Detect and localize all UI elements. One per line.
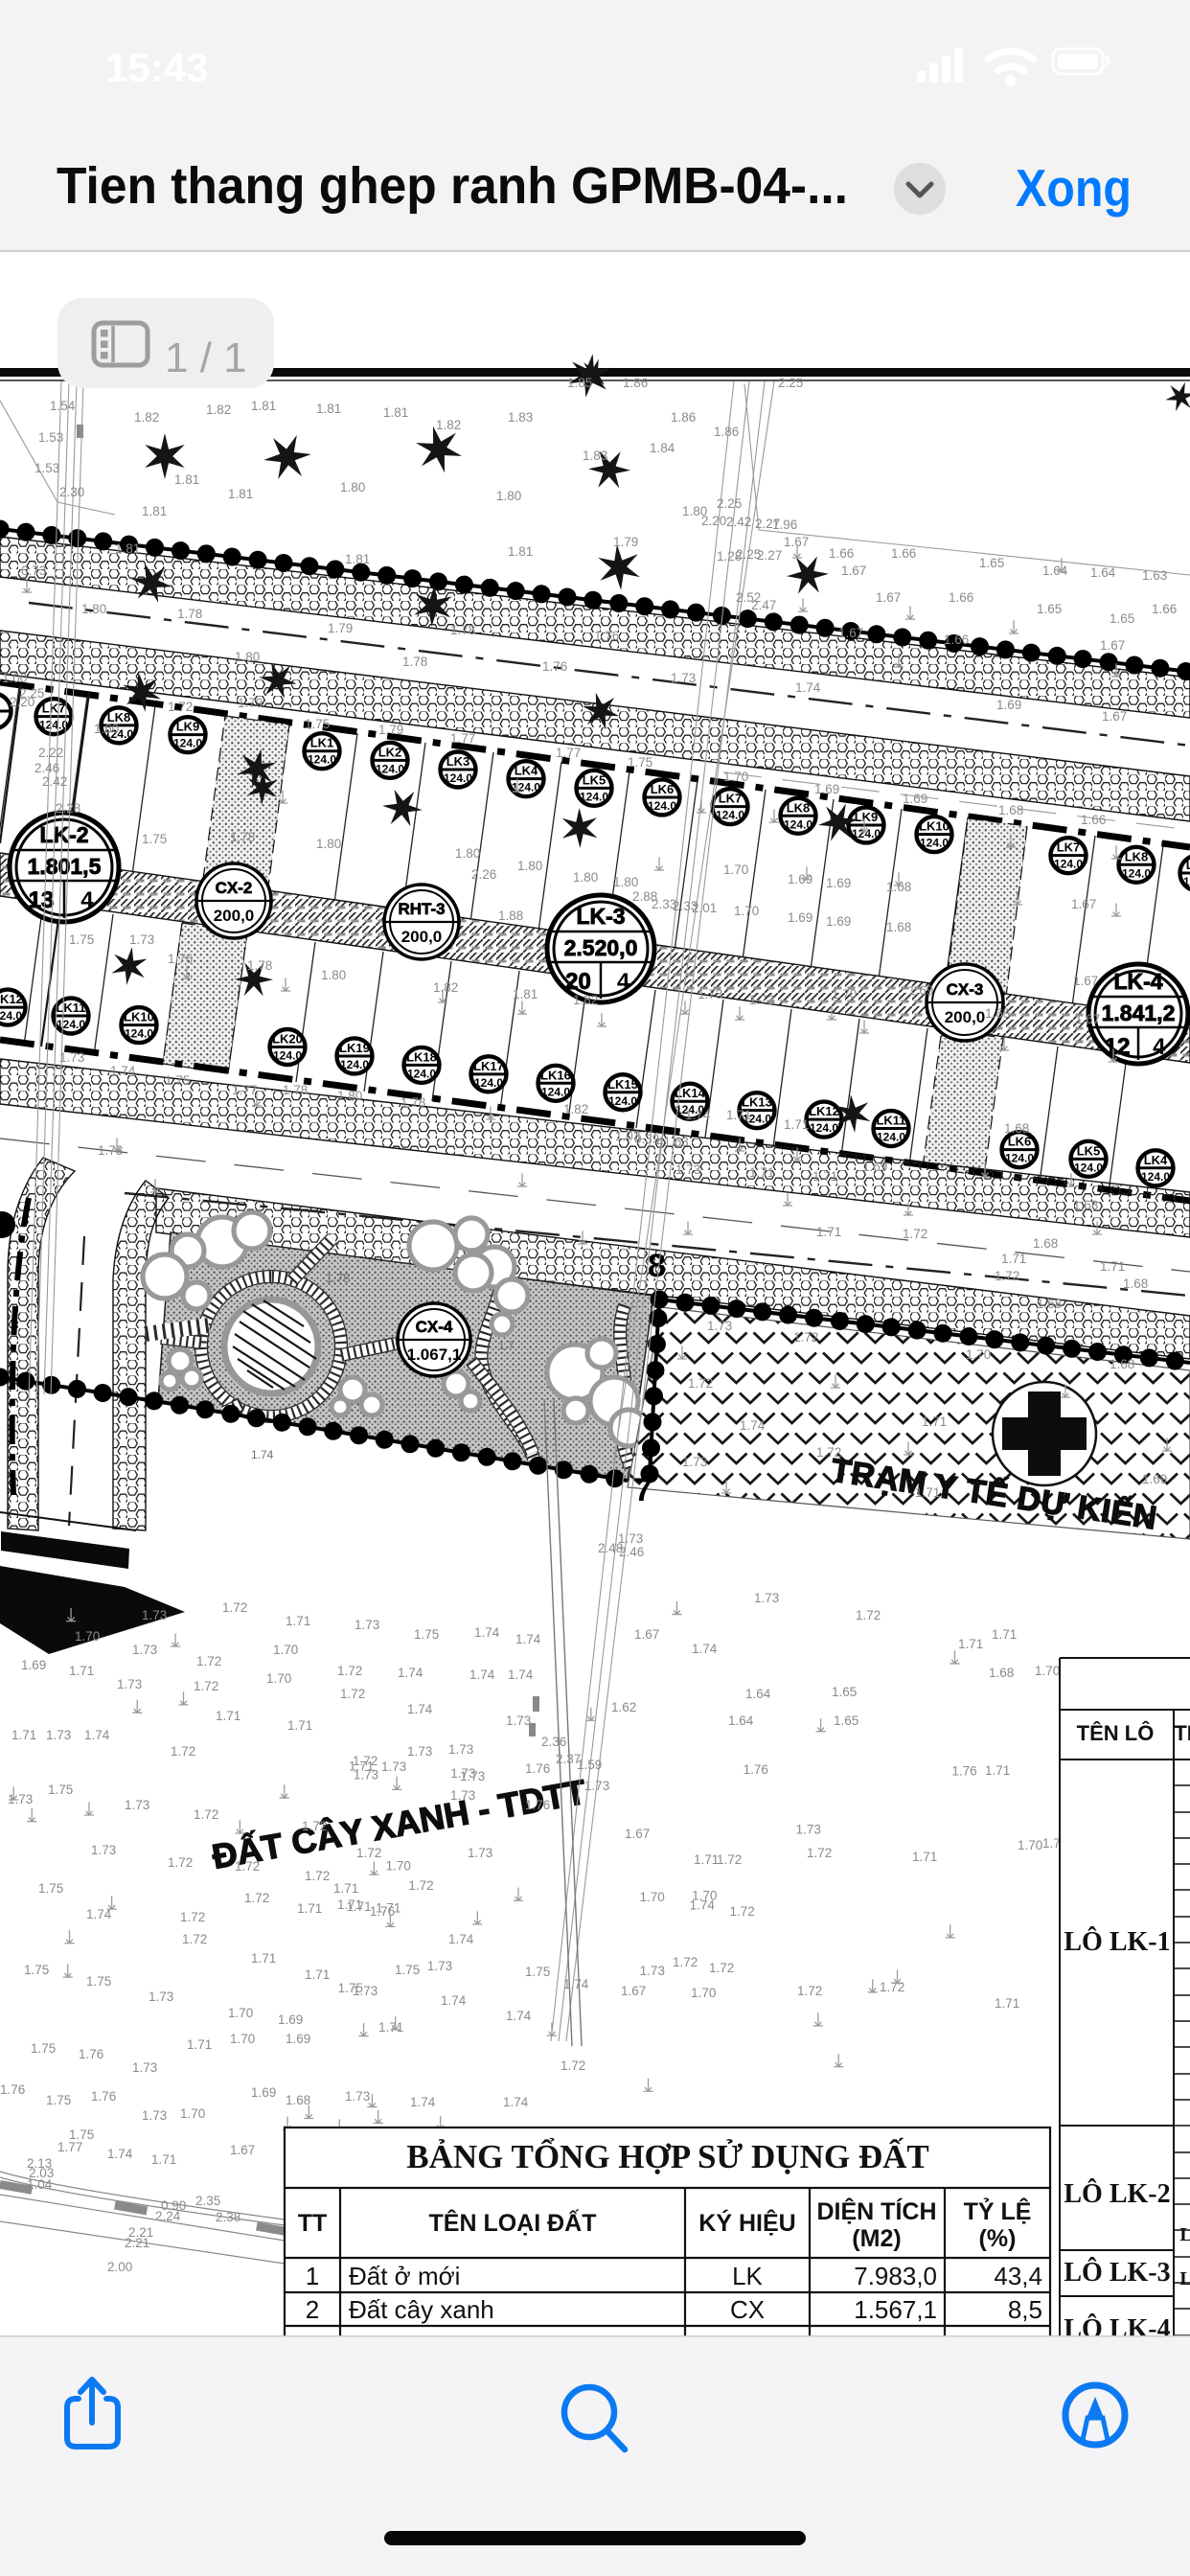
svg-text:1.77: 1.77 [450,731,475,746]
svg-text:1.79: 1.79 [613,535,638,549]
svg-text:124.0: 124.0 [1005,1152,1034,1165]
svg-text:1.74: 1.74 [410,2095,436,2109]
svg-text:LK8: LK8 [787,800,811,815]
svg-text:1.96: 1.96 [772,517,797,532]
svg-text:1.68: 1.68 [886,920,911,934]
svg-text:1.73: 1.73 [149,1989,173,2004]
svg-text:1.80: 1.80 [613,875,638,889]
svg-text:1.67: 1.67 [838,626,863,640]
svg-text:1.72: 1.72 [356,1846,381,1860]
svg-text:1.75: 1.75 [69,932,94,947]
svg-text:1.72: 1.72 [797,1984,822,1998]
svg-text:1.65: 1.65 [1110,611,1134,626]
svg-text:1.62: 1.62 [611,1700,636,1714]
svg-text:1.73: 1.73 [698,987,722,1001]
svg-text:1.64: 1.64 [745,1687,771,1701]
svg-text:1.83: 1.83 [508,410,533,425]
svg-text:1.68: 1.68 [989,1666,1014,1680]
svg-text:1.81: 1.81 [174,472,199,487]
svg-text:1.80: 1.80 [517,859,542,873]
svg-text:1.75: 1.75 [525,1965,550,1979]
svg-text:LK11: LK11 [876,1114,905,1128]
svg-text:124.0: 124.0 [877,1131,905,1144]
svg-text:2.25: 2.25 [778,376,803,390]
svg-text:1.76: 1.76 [951,1764,976,1779]
svg-text:1.69: 1.69 [788,910,812,925]
svg-text:1.81: 1.81 [228,487,253,501]
svg-text:1.75: 1.75 [414,1627,439,1642]
svg-text:1.67: 1.67 [876,590,901,605]
svg-text:1.71: 1.71 [1100,1259,1125,1274]
svg-text:124.0: 124.0 [810,1121,838,1135]
svg-text:124.0: 124.0 [39,719,68,732]
svg-text:124.0: 124.0 [608,1094,637,1108]
svg-text:1.82: 1.82 [436,418,461,432]
svg-text:1.72: 1.72 [717,1852,742,1867]
svg-text:1.75: 1.75 [305,717,330,731]
svg-text:1.70: 1.70 [723,770,748,784]
svg-text:124.0: 124.0 [716,809,744,822]
svg-text:1.72: 1.72 [182,1932,207,1946]
svg-text:2.26: 2.26 [471,867,496,882]
svg-text:1.79: 1.79 [238,696,263,710]
svg-text:1.71: 1.71 [287,1718,312,1733]
svg-text:1.74: 1.74 [469,1667,495,1682]
svg-text:1.81: 1.81 [345,552,370,566]
svg-text:LK11: LK11 [56,1000,85,1015]
svg-text:1.72: 1.72 [816,1445,841,1460]
svg-text:2.46: 2.46 [619,1545,644,1559]
svg-text:1.74: 1.74 [503,2095,529,2109]
svg-text:13: 13 [29,887,55,913]
svg-text:1.73: 1.73 [448,1742,473,1757]
svg-text:1.73: 1.73 [468,1846,492,1860]
svg-text:1.73: 1.73 [675,1162,700,1177]
svg-text:1.80: 1.80 [455,846,480,861]
svg-text:1.74: 1.74 [506,2009,532,2023]
svg-text:(M2): (M2) [852,2225,901,2252]
svg-text:1.69: 1.69 [826,914,851,929]
svg-text:1.67: 1.67 [634,1627,659,1642]
svg-text:1.82: 1.82 [433,980,458,995]
svg-text:1.72: 1.72 [807,1846,832,1860]
svg-text:1.74: 1.74 [515,1632,541,1646]
svg-text:LK16: LK16 [540,1068,571,1082]
svg-text:1.75: 1.75 [24,1963,49,1977]
svg-text:1.71: 1.71 [69,1664,94,1678]
svg-text:1.74: 1.74 [795,680,821,695]
svg-text:124.0: 124.0 [340,1058,369,1071]
svg-text:1.70: 1.70 [691,1986,716,2000]
svg-text:1.73: 1.73 [132,2060,157,2075]
svg-text:1.75: 1.75 [628,755,652,770]
svg-text:2.47: 2.47 [751,598,776,612]
svg-text:TH: TH [1174,1721,1190,1745]
svg-text:1.73: 1.73 [132,1643,157,1657]
svg-text:1.71: 1.71 [915,1485,940,1500]
svg-text:1.801,5: 1.801,5 [28,854,102,879]
svg-text:1.67: 1.67 [1102,709,1127,724]
svg-text:124.0: 124.0 [57,1018,85,1031]
svg-text:1.73: 1.73 [584,1779,609,1793]
svg-text:1.74: 1.74 [110,1064,136,1078]
svg-text:1.70: 1.70 [734,904,759,918]
svg-text:LK12: LK12 [0,992,23,1006]
svg-text:1.73: 1.73 [506,1713,531,1728]
svg-text:1.73: 1.73 [450,1766,475,1781]
svg-text:1.70: 1.70 [832,987,857,1001]
svg-text:1.68: 1.68 [1110,1357,1134,1371]
svg-text:1.77: 1.77 [57,2140,82,2154]
svg-text:1.80: 1.80 [235,650,260,664]
svg-text:1.70: 1.70 [75,1629,100,1644]
svg-text:Đất cây xanh: Đất cây xanh [349,2295,494,2324]
svg-text:2.24: 2.24 [155,2209,181,2223]
svg-text:1.74: 1.74 [84,1728,110,1742]
svg-text:1.78: 1.78 [177,607,202,621]
svg-text:LK9: LK9 [1186,858,1190,872]
svg-text:L: L [1179,2224,1190,2245]
svg-text:4: 4 [1153,1034,1166,1060]
svg-text:1.71: 1.71 [187,2037,212,2052]
svg-text:LK12: LK12 [809,1104,839,1118]
svg-text:124.0: 124.0 [920,837,949,850]
svg-text:2.36: 2.36 [541,1735,566,1749]
svg-text:Đất ở mới: Đất ở mới [349,2262,460,2290]
svg-text:CX: CX [730,2295,765,2324]
svg-text:200,0: 200,0 [401,928,443,946]
svg-text:1.71: 1.71 [995,1996,1019,2011]
svg-text:1.86: 1.86 [671,410,696,425]
svg-text:LK19: LK19 [339,1041,370,1055]
svg-text:1.53: 1.53 [38,430,63,445]
svg-text:1.70: 1.70 [230,2032,255,2046]
svg-text:LK17: LK17 [473,1059,504,1073]
svg-text:1.69: 1.69 [286,2032,310,2046]
svg-text:1.75: 1.75 [86,1974,111,1989]
svg-text:1.76: 1.76 [79,2047,103,2061]
svg-text:124.0: 124.0 [1183,875,1190,888]
svg-text:Tien thang ghep ranh GPMB-04-.: Tien thang ghep ranh GPMB-04-... [57,157,848,215]
svg-text:1.73: 1.73 [355,1618,379,1632]
svg-text:1.76: 1.76 [525,1761,550,1776]
svg-text:2.88: 2.88 [632,889,657,904]
svg-text:1.73: 1.73 [754,1591,779,1605]
svg-text:1.79: 1.79 [328,621,353,635]
svg-text:1.72: 1.72 [880,1980,904,1994]
svg-text:43,4: 43,4 [994,2262,1042,2290]
svg-text:1.71: 1.71 [922,1414,947,1429]
svg-text:1 / 1: 1 / 1 [165,334,247,381]
svg-text:1.71: 1.71 [992,1627,1017,1642]
svg-text:1.70: 1.70 [266,1671,291,1686]
svg-text:1.70: 1.70 [723,862,748,877]
svg-text:1.78: 1.78 [247,958,272,973]
svg-text:1.71: 1.71 [346,1899,371,1914]
svg-text:1.65: 1.65 [832,1685,857,1699]
svg-text:RHT-3: RHT-3 [398,900,445,918]
svg-text:1.71: 1.71 [958,1637,983,1651]
svg-text:1.75: 1.75 [38,1881,63,1896]
svg-text:1.68: 1.68 [1123,1276,1148,1291]
svg-text:8,5: 8,5 [1008,2295,1042,2324]
svg-text:(%): (%) [979,2225,1017,2252]
svg-text:2.30: 2.30 [59,485,84,499]
svg-text:1.80: 1.80 [573,870,598,885]
svg-text:1.71: 1.71 [251,1951,276,1966]
svg-text:1.73: 1.73 [618,1531,643,1546]
svg-text:1.72: 1.72 [793,1330,818,1345]
svg-text:LK1: LK1 [310,736,334,750]
svg-text:2.20: 2.20 [701,514,726,528]
svg-text:KÝ HIỆU: KÝ HIỆU [698,2208,795,2237]
svg-text:1.72: 1.72 [340,1687,365,1701]
svg-text:1.72: 1.72 [709,1961,734,1975]
svg-text:124.0: 124.0 [376,762,404,775]
svg-text:1.73: 1.73 [142,1608,167,1622]
svg-text:1.74: 1.74 [107,2147,133,2161]
svg-text:Xong: Xong [1016,158,1132,218]
svg-text:1.67: 1.67 [1073,974,1098,988]
svg-text:1.80: 1.80 [81,602,106,616]
svg-text:LÔ LK-3: LÔ LK-3 [1064,2258,1170,2288]
svg-text:1.81: 1.81 [508,544,533,559]
svg-text:1.60: 1.60 [94,722,119,736]
svg-text:4: 4 [80,887,94,913]
svg-text:1.81: 1.81 [115,541,140,556]
svg-text:1.71: 1.71 [749,1165,774,1180]
svg-text:1.68: 1.68 [998,803,1023,817]
svg-text:0.73: 0.73 [21,563,46,578]
svg-text:1.76: 1.76 [0,2082,25,2097]
svg-text:1.65: 1.65 [979,556,1004,570]
svg-text:124.0: 124.0 [444,771,472,785]
svg-text:1.75: 1.75 [395,1963,420,1977]
svg-text:1.80: 1.80 [316,837,341,851]
svg-text:1.71: 1.71 [985,1763,1010,1778]
svg-text:1.66: 1.66 [891,546,916,561]
svg-text:CX-4: CX-4 [416,1318,453,1336]
svg-text:2.22: 2.22 [38,746,63,760]
svg-text:1.71: 1.71 [216,1709,240,1723]
svg-text:1.66: 1.66 [949,590,973,605]
svg-text:1.69: 1.69 [996,698,1021,712]
svg-text:1.88: 1.88 [498,908,523,923]
svg-text:1.71: 1.71 [816,1225,841,1239]
svg-text:1.59: 1.59 [577,1758,602,1772]
svg-text:1.53: 1.53 [34,461,59,475]
svg-text:1.81: 1.81 [251,399,276,413]
svg-text:1.72: 1.72 [408,1878,433,1893]
svg-text:1.73: 1.73 [129,932,154,947]
svg-text:1.77: 1.77 [556,746,581,760]
svg-text:1.82: 1.82 [563,1102,588,1116]
svg-text:124.0: 124.0 [273,1049,302,1063]
svg-text:BẢNG TỔNG HỢP SỬ DỤNG ĐẤT: BẢNG TỔNG HỢP SỬ DỤNG ĐẤT [406,2136,928,2175]
svg-text:2.46: 2.46 [34,761,59,775]
svg-text:124.0: 124.0 [0,1009,22,1023]
svg-text:1.67: 1.67 [230,2143,255,2157]
svg-text:124.0: 124.0 [1054,858,1083,871]
svg-text:1.84: 1.84 [650,441,675,455]
svg-text:1.75: 1.75 [31,2041,56,2056]
svg-text:1.72: 1.72 [244,1891,269,1905]
svg-text:1.70: 1.70 [966,1347,991,1362]
svg-text:1.71: 1.71 [151,2152,176,2167]
svg-text:LK6: LK6 [1008,1135,1032,1149]
svg-text:124.0: 124.0 [580,790,608,803]
svg-text:TT: TT [298,2210,328,2237]
svg-text:8: 8 [648,1248,666,1284]
svg-text:1.71: 1.71 [912,1850,937,1864]
svg-text:1.71: 1.71 [297,1901,322,1916]
svg-text:1.75: 1.75 [48,1782,73,1797]
svg-text:1.68: 1.68 [1037,1297,1062,1311]
svg-text:124.0: 124.0 [474,1076,503,1090]
svg-text:1.82: 1.82 [206,402,231,417]
svg-text:TỶ LỆ: TỶ LỆ [964,2196,1032,2225]
svg-text:1.71: 1.71 [376,1901,400,1916]
svg-text:LÔ LK-2: LÔ LK-2 [1064,2179,1170,2209]
svg-text:1.72: 1.72 [995,1269,1019,1283]
svg-text:1.80: 1.80 [496,489,521,503]
svg-text:1.73: 1.73 [671,671,696,685]
svg-text:1.73: 1.73 [796,1823,821,1837]
svg-text:1.74: 1.74 [251,1448,274,1461]
svg-text:124.0: 124.0 [1122,866,1151,880]
svg-text:1.72: 1.72 [194,1679,218,1693]
svg-text:LK7: LK7 [719,792,743,806]
svg-text:1.72: 1.72 [171,1744,195,1759]
svg-text:124.0: 124.0 [784,817,812,831]
svg-text:1.74: 1.74 [563,1977,589,1991]
svg-text:1.72: 1.72 [168,700,193,714]
svg-text:CX-3: CX-3 [947,980,984,999]
svg-text:1.63: 1.63 [1142,568,1167,583]
svg-text:1.79: 1.79 [378,723,403,737]
svg-text:L: L [1179,2268,1190,2289]
svg-text:1.65: 1.65 [1037,602,1062,616]
svg-text:1.73: 1.73 [91,1843,116,1857]
svg-text:1.86: 1.86 [623,376,648,390]
svg-text:1.74: 1.74 [398,1666,423,1680]
svg-text:1.73: 1.73 [407,1744,432,1759]
svg-text:1.72: 1.72 [337,1664,362,1678]
svg-text:LK10: LK10 [919,819,950,834]
svg-text:1.70: 1.70 [180,2106,205,2121]
svg-text:2.520,0: 2.520,0 [564,935,638,960]
svg-text:1.73: 1.73 [345,2089,370,2104]
svg-text:1.71: 1.71 [349,1759,374,1773]
svg-text:1.71: 1.71 [726,1108,751,1122]
svg-text:1.72: 1.72 [561,2058,585,2073]
svg-text:1.74: 1.74 [692,1642,718,1656]
svg-text:1.76: 1.76 [168,952,193,966]
svg-text:1.70: 1.70 [228,2006,253,2020]
svg-text:7.983,0: 7.983,0 [854,2262,937,2290]
svg-text:1.73: 1.73 [46,1728,71,1742]
svg-text:1.71: 1.71 [812,1169,837,1184]
svg-text:124.0: 124.0 [308,753,336,767]
svg-text:LK8: LK8 [1125,849,1149,863]
svg-text:1.73: 1.73 [59,1050,84,1065]
svg-text:1.76: 1.76 [542,659,567,674]
svg-text:2.38: 2.38 [216,2210,240,2224]
svg-text:1.69: 1.69 [1142,1472,1167,1486]
svg-text:1.74: 1.74 [448,1932,474,1946]
svg-text:1.78: 1.78 [450,623,475,637]
svg-text:1.78: 1.78 [230,830,255,844]
svg-text:1.67: 1.67 [784,535,809,549]
svg-text:7: 7 [634,1472,652,1508]
svg-text:1.81: 1.81 [383,405,408,420]
svg-text:1.74: 1.74 [441,1993,467,2008]
svg-text:LK7: LK7 [1057,840,1081,855]
svg-text:1.71: 1.71 [378,2020,403,2035]
svg-text:1.83: 1.83 [583,448,607,463]
svg-text:1.04: 1.04 [27,2177,53,2192]
svg-text:LK4: LK4 [1144,1153,1168,1167]
svg-text:1.54: 1.54 [50,399,76,413]
svg-text:12: 12 [1105,1034,1131,1060]
svg-text:124.0: 124.0 [1074,1161,1103,1174]
svg-text:1.82: 1.82 [573,993,598,1007]
svg-text:15:43: 15:43 [105,45,208,90]
svg-text:1.85: 1.85 [567,376,592,390]
svg-text:1.71: 1.71 [11,1728,36,1742]
svg-text:LK7: LK7 [42,701,66,716]
svg-text:124.0: 124.0 [541,1085,570,1098]
svg-text:1.69: 1.69 [251,2085,276,2100]
svg-text:1.73: 1.73 [749,993,774,1007]
svg-text:1.72: 1.72 [673,1955,698,1969]
svg-text:1.72: 1.72 [235,1859,260,1874]
svg-text:LK18: LK18 [406,1049,437,1064]
svg-text:1.77: 1.77 [232,1083,257,1097]
svg-text:LK9: LK9 [855,810,879,824]
svg-text:1.69: 1.69 [826,876,851,890]
svg-text:1.73: 1.73 [125,1798,149,1812]
svg-text:2.28: 2.28 [56,801,80,816]
svg-text:1.68: 1.68 [286,2093,310,2107]
svg-text:1.69: 1.69 [278,2012,303,2027]
svg-text:1.80: 1.80 [340,480,365,494]
svg-text:DIỆN TÍCH: DIỆN TÍCH [817,2196,937,2225]
svg-text:1.71: 1.71 [286,1614,310,1628]
svg-text:1.74: 1.74 [685,1108,711,1122]
svg-text:1: 1 [306,2262,319,2290]
svg-text:1.73: 1.73 [117,1677,142,1691]
svg-text:1.71: 1.71 [694,1852,719,1867]
svg-text:1.7: 1.7 [498,1339,515,1352]
svg-text:2.21: 2.21 [125,2236,149,2250]
svg-text:1.73: 1.73 [427,1959,452,1973]
svg-text:1.70: 1.70 [1035,1664,1060,1678]
svg-text:1.73: 1.73 [640,1964,665,1978]
svg-text:1.72: 1.72 [903,1227,927,1241]
svg-text:LK2: LK2 [378,745,402,759]
svg-text:1.68: 1.68 [1004,1121,1029,1136]
svg-text:1.64: 1.64 [728,1713,754,1728]
svg-text:1.66: 1.66 [944,632,969,647]
svg-text:2.25: 2.25 [717,496,742,511]
svg-text:1.69: 1.69 [862,1160,887,1174]
svg-text:4: 4 [617,969,630,995]
svg-text:1.68: 1.68 [1073,1198,1098,1212]
svg-text:1.76: 1.76 [91,2089,116,2104]
svg-text:1.71: 1.71 [1001,1252,1026,1266]
svg-text:1.67: 1.67 [625,1827,650,1841]
